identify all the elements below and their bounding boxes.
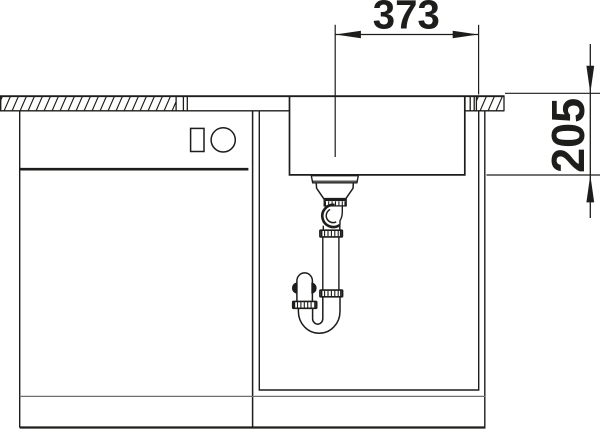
svg-text:205: 205 [542, 98, 594, 173]
svg-text:373: 373 [373, 0, 440, 38]
